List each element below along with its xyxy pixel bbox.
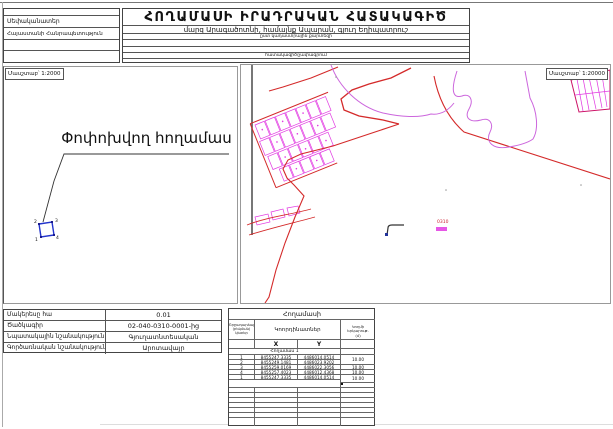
parcel-block-road [250, 92, 354, 187]
left-scale-box: Մասշտաբ՝ 1:2000 [5, 68, 64, 80]
vertex-label-2: 2 [34, 219, 37, 225]
empty-cell [341, 418, 375, 426]
lower-cluster-roads [247, 209, 315, 235]
y-column-header: Y [298, 340, 341, 349]
stray-mark [341, 383, 343, 385]
page-top-rule [0, 2, 613, 3]
owner-empty-row [4, 40, 119, 51]
contour-line [331, 65, 454, 117]
info-label: Գործառնական նշանակություն [4, 343, 106, 354]
subject-parcel-dot [385, 233, 388, 236]
left-map-drawing: 2 3 4 1 [4, 67, 237, 303]
village-parcel-block [250, 92, 354, 187]
leader-line [43, 154, 229, 222]
changing-parcel-polygon [39, 222, 54, 237]
info-value: 0.01 [106, 310, 221, 320]
parcel-code-chip [436, 227, 447, 231]
col-header-length: Կողմի երկարութ. (մ) [341, 320, 375, 340]
empty-cell [255, 418, 298, 426]
road-line [269, 67, 338, 91]
col-length-l2: (մ) [355, 333, 360, 338]
right-map-panel: Մասշտաբ՝ 1:20000 [240, 64, 611, 304]
right-map-drawing: 0310 [241, 65, 610, 303]
col-header-points: Շրջադարձային (բեկման) կետեր [229, 320, 255, 340]
road-line [265, 124, 399, 303]
info-row-purpose: Նպատակային նշանակություն Գյուղատնտեսական [4, 332, 221, 343]
info-label: Նպատակային նշանակություն [4, 332, 106, 342]
vertex-label-3: 3 [55, 218, 58, 224]
location-line: մարզ Արագածոտնի, համայնք Ապարան, գյուղ Ե… [123, 26, 469, 34]
coord-table-title: Հողամասի [229, 309, 375, 320]
vertex-dot [40, 236, 42, 238]
side-length: 10.00 [341, 375, 375, 383]
xy-row-blank [229, 340, 255, 349]
info-row-function: Գործառնական նշանակություն Արոտավայր [4, 343, 221, 354]
xy-row-blank [341, 340, 375, 349]
owner-value: Հայաստանի Հանրապետություն [4, 28, 119, 40]
info-label: Ծածկագիր [4, 321, 106, 331]
cadastral-plan-page: Սեփականատեր Հայաստանի Հանրապետություն ՀՈ… [0, 0, 613, 429]
title-empty-row [123, 40, 469, 47]
vertex-dot [51, 221, 53, 223]
side-length: 10.00 [341, 355, 375, 365]
vertex-label-1: 1 [35, 237, 38, 243]
title-block: ՀՈՂԱՄԱՍԻ ԻՐԱԴՐԱԿԱՆ ՀԱՏԱԿԱԳԻԾ մարզ Արագած… [122, 8, 470, 63]
empty-cell [298, 418, 341, 426]
owner-table: Սեփականատեր Հայաստանի Հանրապետություն [3, 8, 120, 63]
col-points-l3: կետեր [235, 331, 248, 335]
owner-empty-row [4, 51, 119, 63]
vertex-dot [53, 234, 55, 236]
vertex-label-4: 4 [56, 235, 59, 241]
right-scale-box: Մասշտաբ՝ 1:20000 [546, 68, 608, 80]
owner-label: Սեփականատեր [4, 16, 119, 28]
info-row-code: Ծածկագիր 02-040-0310-0001-ից [4, 321, 221, 332]
col-header-coords: Կոորդինատներ [255, 320, 341, 340]
info-value: 02-040-0310-0001-ից [106, 321, 221, 331]
contour-blob [453, 71, 536, 148]
vertex-dot [38, 223, 40, 225]
info-value: Արոտավայր [106, 343, 221, 354]
info-label: Մակերեսը հա [4, 310, 106, 320]
title-empty-row [123, 59, 469, 63]
x-column-header: X [255, 340, 298, 349]
owner-empty-row [4, 9, 119, 16]
boundary-line [434, 76, 610, 179]
empty-cell [229, 418, 255, 426]
empty-band [229, 380, 341, 388]
parcel-row [279, 149, 334, 181]
coordinates-table: Հողամասի Շրջադարձային (բեկման) կետեր Կոո… [228, 308, 375, 426]
subject-parcel-hook [387, 225, 404, 235]
parcel-code-label: 0310 [437, 219, 449, 225]
info-row-area: Մակերեսը հա 0.01 [4, 310, 221, 321]
info-value: Գյուղատնտեսական [106, 332, 221, 342]
page-title: ՀՈՂԱՄԱՍԻ ԻՐԱԴՐԱԿԱՆ ՀԱՏԱԿԱԳԻԾ [123, 9, 469, 26]
left-map-panel: Մասշտաբ՝ 1:2000 Փոփոխվող հողամաս 2 3 4 1 [3, 66, 238, 304]
parcel-info-table: Մակերեսը հա 0.01 Ծածկագիր 02-040-0310-00… [3, 309, 222, 353]
